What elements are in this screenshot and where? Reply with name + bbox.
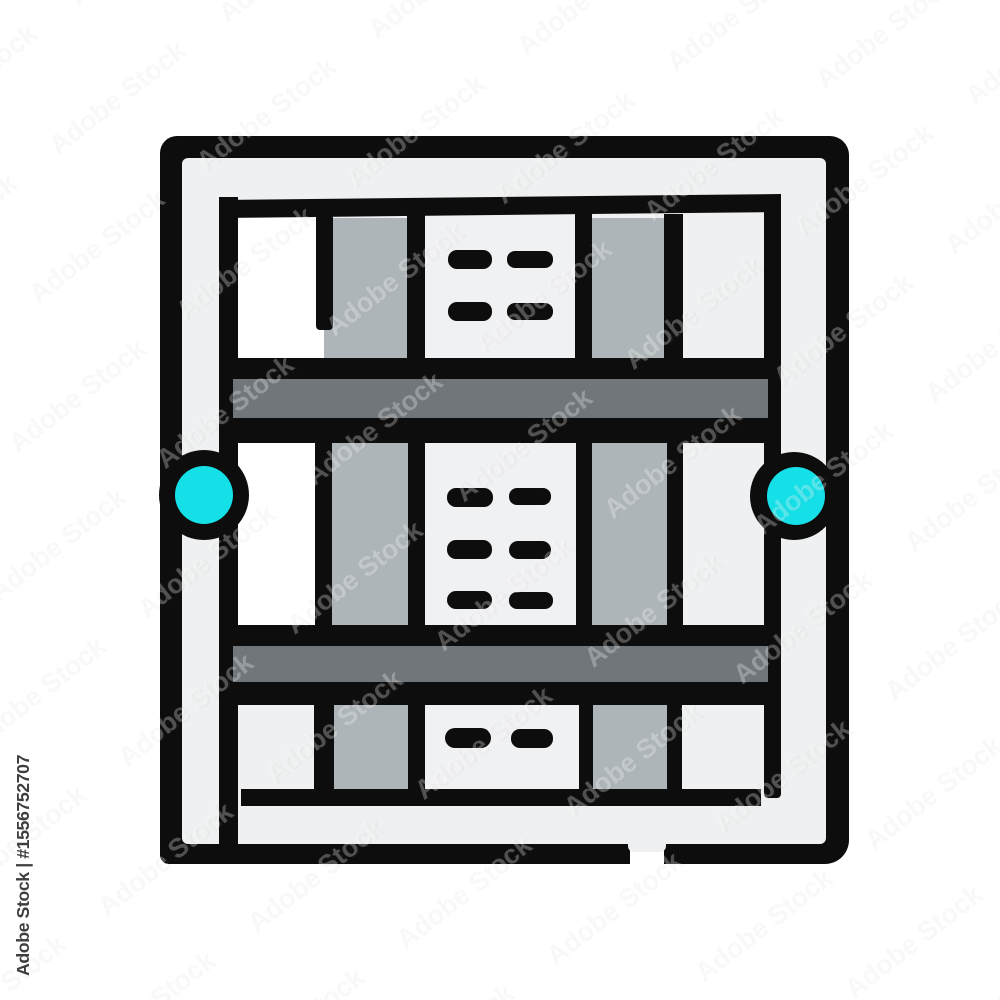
svg-text:Adobe Stock | #1556752707: Adobe Stock | #1556752707 [13, 754, 33, 976]
